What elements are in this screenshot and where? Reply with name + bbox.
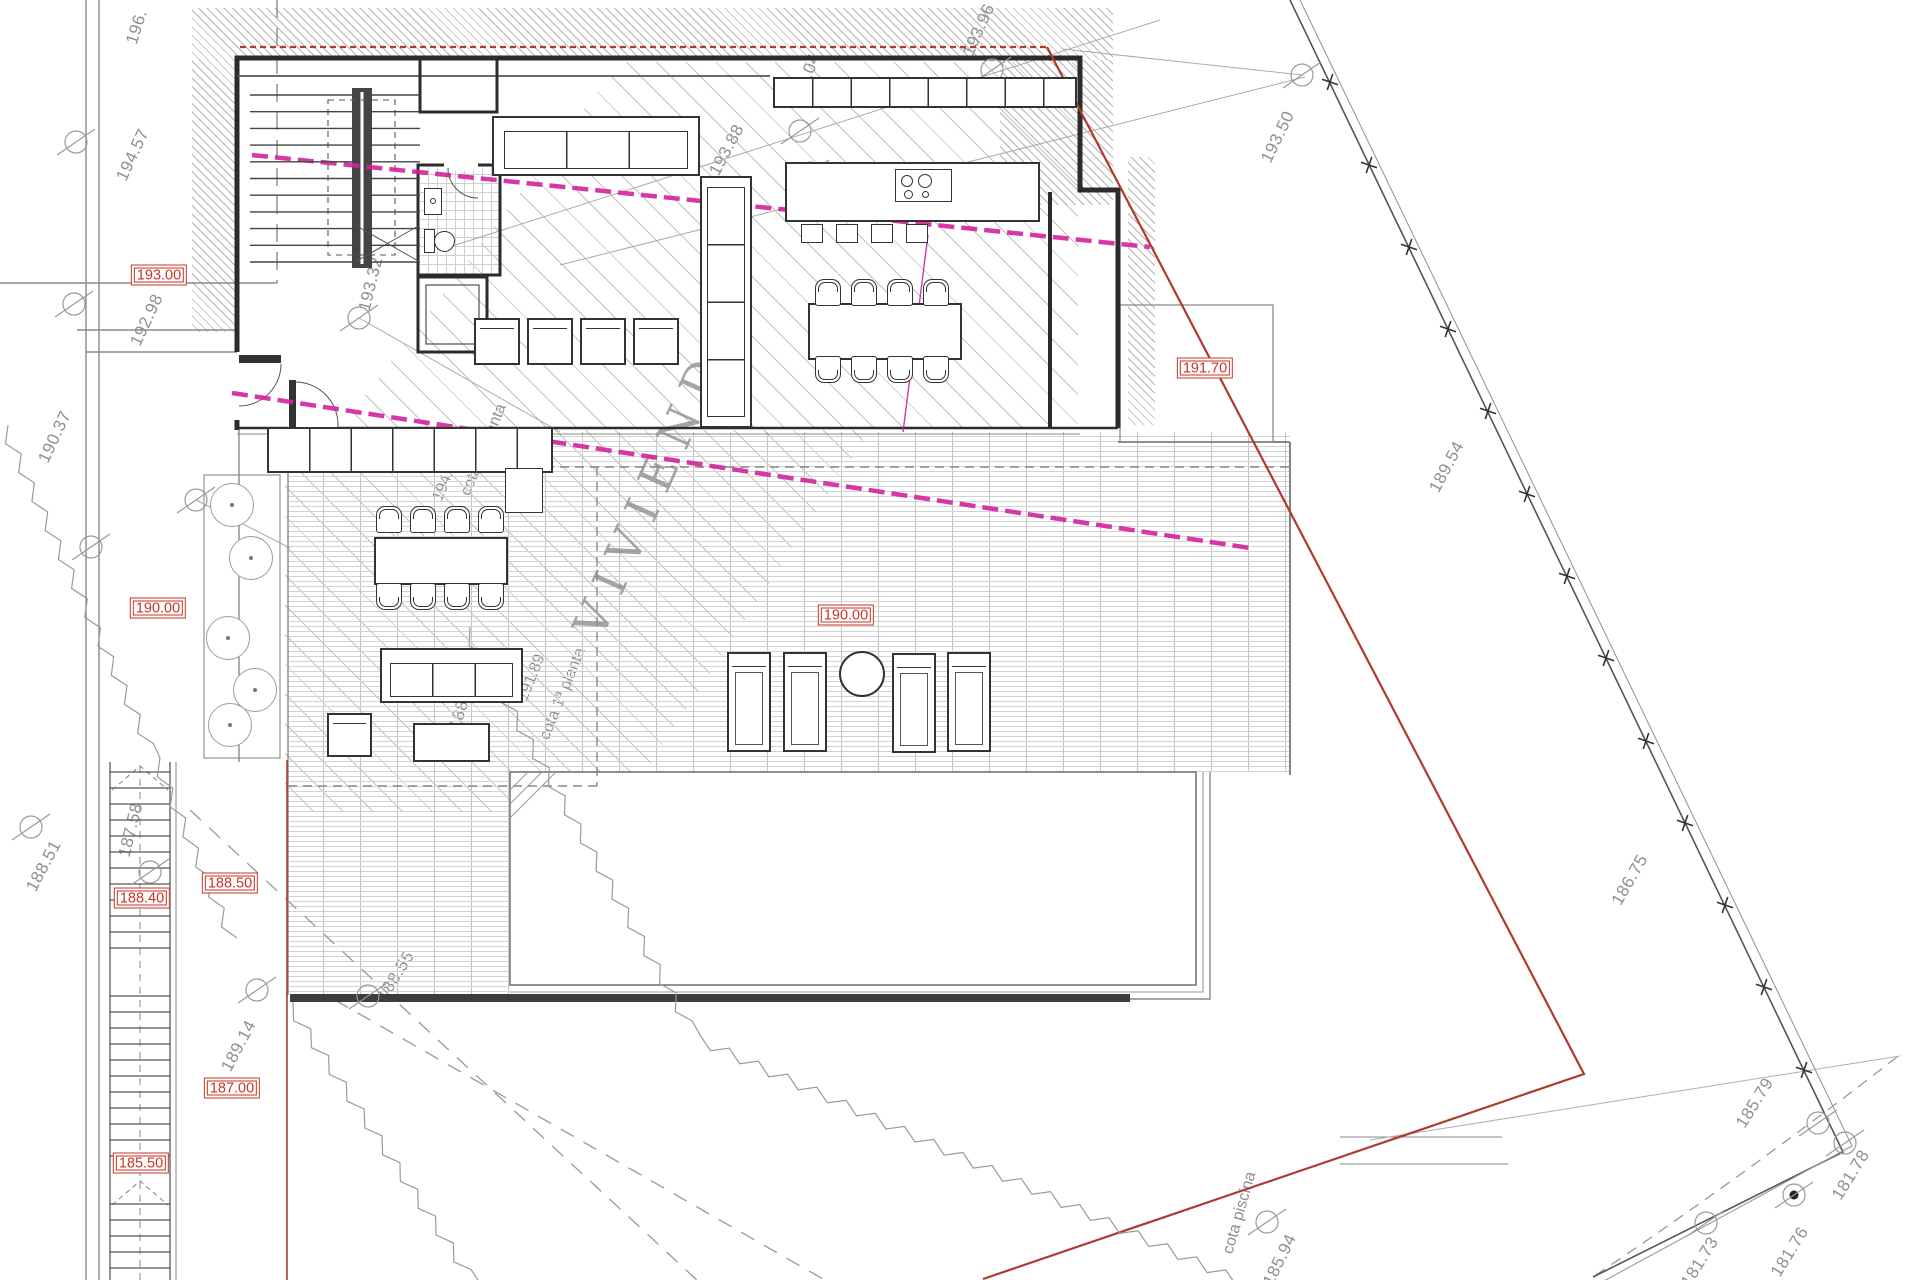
- survey-marker: [12, 814, 50, 840]
- round-table: [839, 651, 885, 697]
- fence-tick: [1598, 650, 1614, 666]
- outdoor-sofa: [380, 648, 523, 703]
- chaise-unit: [700, 176, 752, 428]
- sun-lounger: [947, 652, 991, 752]
- pool: [510, 772, 1210, 999]
- survey-marker: [1687, 1210, 1725, 1236]
- survey-marker: [1248, 1209, 1286, 1235]
- fence-tick: [1480, 403, 1496, 419]
- survey-marker: [238, 977, 276, 1003]
- tree: [206, 616, 250, 660]
- outdoor-chair: [478, 583, 504, 610]
- cooktop: [895, 169, 952, 202]
- bathroom-door-arc: [448, 168, 478, 198]
- survey-marker: [1799, 1110, 1837, 1136]
- outdoor-chair: [444, 506, 470, 533]
- bar-stool: [871, 224, 893, 243]
- armchair: [527, 318, 573, 365]
- survey-marker: [131, 859, 169, 885]
- elevation-box: 188.50: [202, 873, 258, 894]
- elevation-box: 190.00: [818, 605, 874, 626]
- kitchen-counter: [773, 77, 1077, 108]
- outdoor-cabinet: [267, 427, 553, 473]
- side-table: [505, 468, 543, 513]
- fence-tick: [1322, 74, 1338, 90]
- retaining-wall: [290, 994, 1130, 1002]
- dining-chair: [851, 356, 877, 383]
- sun-lounger: [892, 653, 936, 753]
- elevation-box: 193.00: [131, 265, 187, 286]
- sofa: [492, 116, 700, 176]
- fence-tick: [1638, 733, 1654, 749]
- survey-marker: [55, 291, 93, 317]
- outdoor-chair: [376, 583, 402, 610]
- bar-stool: [906, 224, 928, 243]
- dining-chair: [887, 356, 913, 383]
- bathroom-sink: [424, 188, 442, 215]
- outdoor-chair: [410, 506, 436, 533]
- survey-marker: [177, 487, 215, 513]
- grade-line: [1370, 1056, 1900, 1140]
- sun-lounger: [783, 652, 827, 752]
- tree: [208, 703, 252, 747]
- elevation-box: 190.00: [130, 598, 186, 619]
- survey-marker: [340, 305, 378, 331]
- elevation-box: 185.50: [113, 1153, 169, 1174]
- armchair: [580, 318, 626, 365]
- coffee-table: [413, 723, 490, 762]
- dining-chair: [815, 356, 841, 383]
- survey-marker: [1826, 1130, 1864, 1156]
- outdoor-chair: [376, 506, 402, 533]
- fence-tick: [1756, 979, 1772, 995]
- outdoor-dining-table: [374, 537, 508, 585]
- dining-chair: [923, 279, 949, 306]
- bar-stool: [836, 224, 858, 243]
- outdoor-chair: [410, 583, 436, 610]
- survey-marker: [1775, 1182, 1813, 1208]
- sun-lounger: [727, 652, 771, 752]
- fence-tick: [1717, 897, 1733, 913]
- fence-tick: [1361, 157, 1377, 173]
- entry-door-arc: [239, 364, 281, 406]
- outdoor-chair: [444, 583, 470, 610]
- fence-tick: [1440, 321, 1456, 337]
- tree: [210, 483, 254, 527]
- outdoor-armchair: [327, 713, 372, 757]
- survey-marker: [57, 129, 95, 155]
- fence-tick: [1519, 486, 1535, 502]
- fence-tick: [1677, 815, 1693, 831]
- slope-dashed-lines: [190, 810, 1897, 1280]
- kitchen-island: [785, 162, 1040, 222]
- fence-tick: [1401, 239, 1417, 255]
- tree: [229, 536, 273, 580]
- dining-chair: [815, 279, 841, 306]
- armchair: [474, 318, 520, 365]
- survey-marker: [72, 534, 110, 560]
- slope-zigzag: [6, 425, 1256, 1280]
- fence-tick: [1559, 568, 1575, 584]
- dining-chair: [923, 356, 949, 383]
- outdoor-chair: [478, 506, 504, 533]
- dining-chair: [887, 279, 913, 306]
- bar-stool: [801, 224, 823, 243]
- entry-door-leaf: [239, 355, 281, 363]
- elevation-box: 191.70: [1177, 358, 1233, 379]
- dining-table: [808, 303, 962, 360]
- dining-chair: [851, 279, 877, 306]
- elevation-box: 188.40: [114, 888, 170, 909]
- survey-marker: [1283, 62, 1321, 88]
- floor-plan-canvas: 193.00 191.70 190.00 190.00 188.40 188.5…: [0, 0, 1920, 1280]
- boundary-fence: [1290, 0, 1852, 1280]
- armchair: [633, 318, 679, 365]
- elevation-box: 187.00: [204, 1078, 260, 1099]
